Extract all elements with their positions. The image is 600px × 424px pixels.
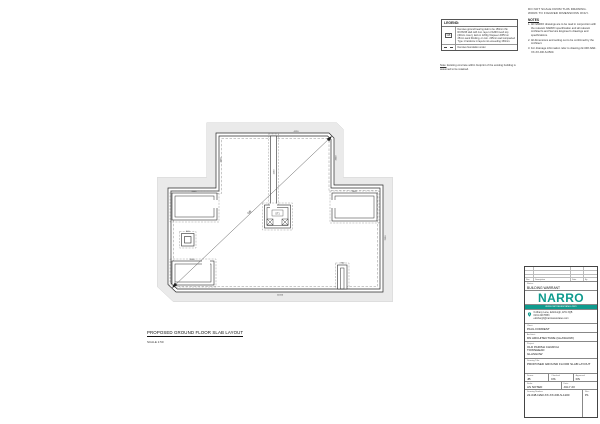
- drawing-number-field: Drawing Number: 22-048-NAR-XX-XX-DR-S-11…: [525, 390, 583, 417]
- drawn-field: Drawn: JB: [525, 374, 549, 381]
- left-room-wall-outer: [172, 193, 217, 220]
- scale-date-row: Scale: AS NOTED Date: JULY 23: [525, 382, 597, 390]
- dimension-label: 2000: [190, 259, 196, 261]
- revision-header-row: Rev Description Date By: [525, 278, 597, 281]
- revision-field: Rev: P1: [583, 390, 597, 417]
- pad-foundation-left: [267, 219, 273, 225]
- gb-symbol-label: GB: [445, 33, 453, 38]
- dimension-label: 2400: [192, 191, 198, 193]
- checked-value: DS: [551, 378, 570, 382]
- dimension-label: 3900: [221, 157, 223, 163]
- revision-table: Rev Description Date By: [525, 267, 597, 282]
- floor-plan-drawing: ST1 GB: [150, 115, 400, 312]
- map-pin-icon: [527, 312, 532, 317]
- title-block: Rev Description Date By Status: BUILDING…: [524, 266, 598, 418]
- plan-caption: PROPOSED GROUND FLOOR SLAB LAYOUT SCALE …: [147, 321, 243, 344]
- drawing-number-value: 22-048-NAR-XX-XX-DR-S-1100: [527, 394, 580, 398]
- status-field: Status: BUILDING WARRANT: [525, 282, 597, 291]
- client-value: PAUL FORREST: [527, 328, 595, 332]
- dimension-label: 4120: [294, 131, 300, 133]
- ground-bearing-slab-symbol: GB: [442, 27, 456, 44]
- right-room-wall-outer: [332, 193, 377, 221]
- note-text: Existing concrete within footprint of th…: [440, 64, 516, 71]
- rev-header: By: [584, 278, 597, 281]
- scale-value: AS NOTED: [527, 386, 559, 390]
- project-line: GLASGOW: [527, 353, 595, 357]
- drawing-title-value: PROPOSED GROUND FLOOR SLAB LAYOUT: [527, 363, 595, 367]
- architect-field: Architect: DN ARCHITECTURE (GLASGOW): [525, 333, 597, 342]
- company-logo-area: NARRO: [525, 291, 597, 305]
- revision-value: P1: [585, 394, 595, 398]
- drawn-checked-row: Drawn: JB Checked: DS Approved: DS: [525, 374, 597, 382]
- pad-foundation-right: [282, 219, 288, 225]
- checked-field: Checked: DS: [549, 374, 573, 381]
- narro-logo: NARRO: [538, 292, 584, 304]
- dimension-label: 1260: [274, 169, 276, 175]
- notes-block: DO NOT SCALE FROM THIS DRAWING. WORK TO …: [528, 7, 597, 54]
- scale-field: Scale: AS NOTED: [525, 382, 562, 389]
- note-item: 2. All dimensions and setting out to be …: [528, 39, 597, 46]
- drawing-title-field: Drawing Title: PROPOSED GROUND FLOOR SLA…: [525, 359, 597, 374]
- dimension-label: 14160: [277, 295, 284, 297]
- dimension-label: 7050: [385, 235, 387, 241]
- architect-value: DN ARCHITECTURE (GLASGOW): [527, 337, 595, 341]
- stub-wall-outer: [338, 265, 348, 289]
- legend-description: Denotes foundation under.: [456, 45, 517, 50]
- dimension-label: 2400: [352, 191, 358, 193]
- plan-title: PROPOSED GROUND FLOOR SLAB LAYOUT: [147, 330, 243, 337]
- legend-title: LEGEND:: [442, 20, 517, 27]
- client-field: Client: PAUL FORREST: [525, 324, 597, 333]
- date-field: Date: JULY 23: [562, 382, 598, 389]
- tagline-text: www.narroassociates.com: [545, 306, 576, 308]
- legend-note: Note: Existing concrete within footprint…: [440, 64, 520, 71]
- rev-header: Rev: [525, 278, 534, 281]
- contact-block: 6 Albany Lane, Edinburgh, EH1 3QB 0131 2…: [525, 310, 597, 324]
- project-field: Project: OLD PARISH CHURCH TOWNHEAD GLAS…: [525, 342, 597, 359]
- right-room-door-opening: [331, 200, 335, 208]
- approved-field: Approved: DS: [574, 374, 597, 381]
- legend-description: Denotes ground bearing slab to be 150mm …: [456, 27, 517, 44]
- central-feature-opening: [270, 204, 277, 209]
- bottom-left-room-wall-outer: [172, 261, 214, 285]
- drawing-sheet: DO NOT SCALE FROM THIS DRAWING. WORK TO …: [0, 0, 600, 424]
- dimension-label: 3900: [336, 155, 338, 161]
- drawing-number-row: Drawing Number: 22-048-NAR-XX-XX-DR-S-11…: [525, 390, 597, 417]
- legend-box: LEGEND: GB Denotes ground bearing slab t…: [441, 19, 518, 51]
- legend-row-ground-bearing-slab: GB Denotes ground bearing slab to be 150…: [442, 27, 517, 45]
- central-feature-label: ST1: [275, 212, 280, 215]
- note-item: 3. For drainage information refer to dra…: [528, 47, 597, 54]
- rev-header: Description: [534, 278, 571, 281]
- notes-title: NOTES: [528, 18, 597, 22]
- note-item: 1. All NARRO drawings are to be read in …: [528, 23, 597, 37]
- rev-header: Date: [571, 278, 584, 281]
- bottom-left-room-door-opening: [202, 261, 210, 265]
- dashed-line-symbol: [442, 45, 456, 50]
- status-value: BUILDING WARRANT: [527, 286, 595, 290]
- legend-row-foundation-under: Denotes foundation under.: [442, 45, 517, 50]
- disclaimer-text: DO NOT SCALE FROM THIS DRAWING. WORK TO …: [528, 7, 597, 15]
- date-value: JULY 23: [564, 386, 596, 390]
- approved-value: DS: [576, 378, 595, 382]
- drawn-value: JB: [527, 378, 546, 382]
- pad-column: [185, 237, 192, 244]
- left-room-door-opening: [214, 200, 218, 208]
- plan-scale: SCALE 1:50: [147, 340, 243, 344]
- contact-email: edinburgh@narroassociates.com: [534, 317, 573, 320]
